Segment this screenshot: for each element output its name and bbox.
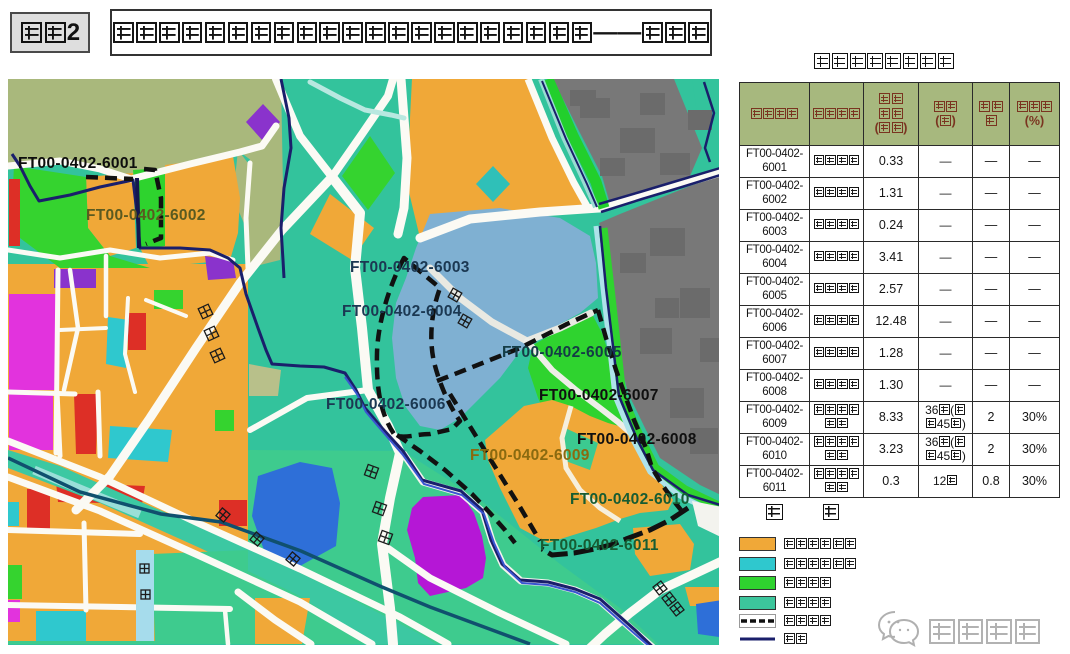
- svg-text:FT00-0402-6002: FT00-0402-6002: [86, 207, 206, 224]
- svg-text:FT00-0402-6004: FT00-0402-6004: [342, 303, 462, 320]
- svg-text:FT00-0402-6008: FT00-0402-6008: [577, 431, 697, 448]
- svg-text:FT00-0402-6006: FT00-0402-6006: [326, 396, 446, 413]
- svg-text:FT00-0402-6005: FT00-0402-6005: [502, 344, 622, 361]
- svg-text:FT00-0402-6001: FT00-0402-6001: [18, 155, 138, 172]
- svg-text:FT00-0402-6003: FT00-0402-6003: [350, 259, 470, 276]
- svg-text:FT00-0402-6011: FT00-0402-6011: [540, 537, 659, 554]
- svg-text:FT00-0402-6009: FT00-0402-6009: [470, 447, 590, 464]
- svg-text:FT00-0402-6010: FT00-0402-6010: [570, 491, 690, 508]
- svg-text:FT00-0402-6007: FT00-0402-6007: [539, 387, 659, 404]
